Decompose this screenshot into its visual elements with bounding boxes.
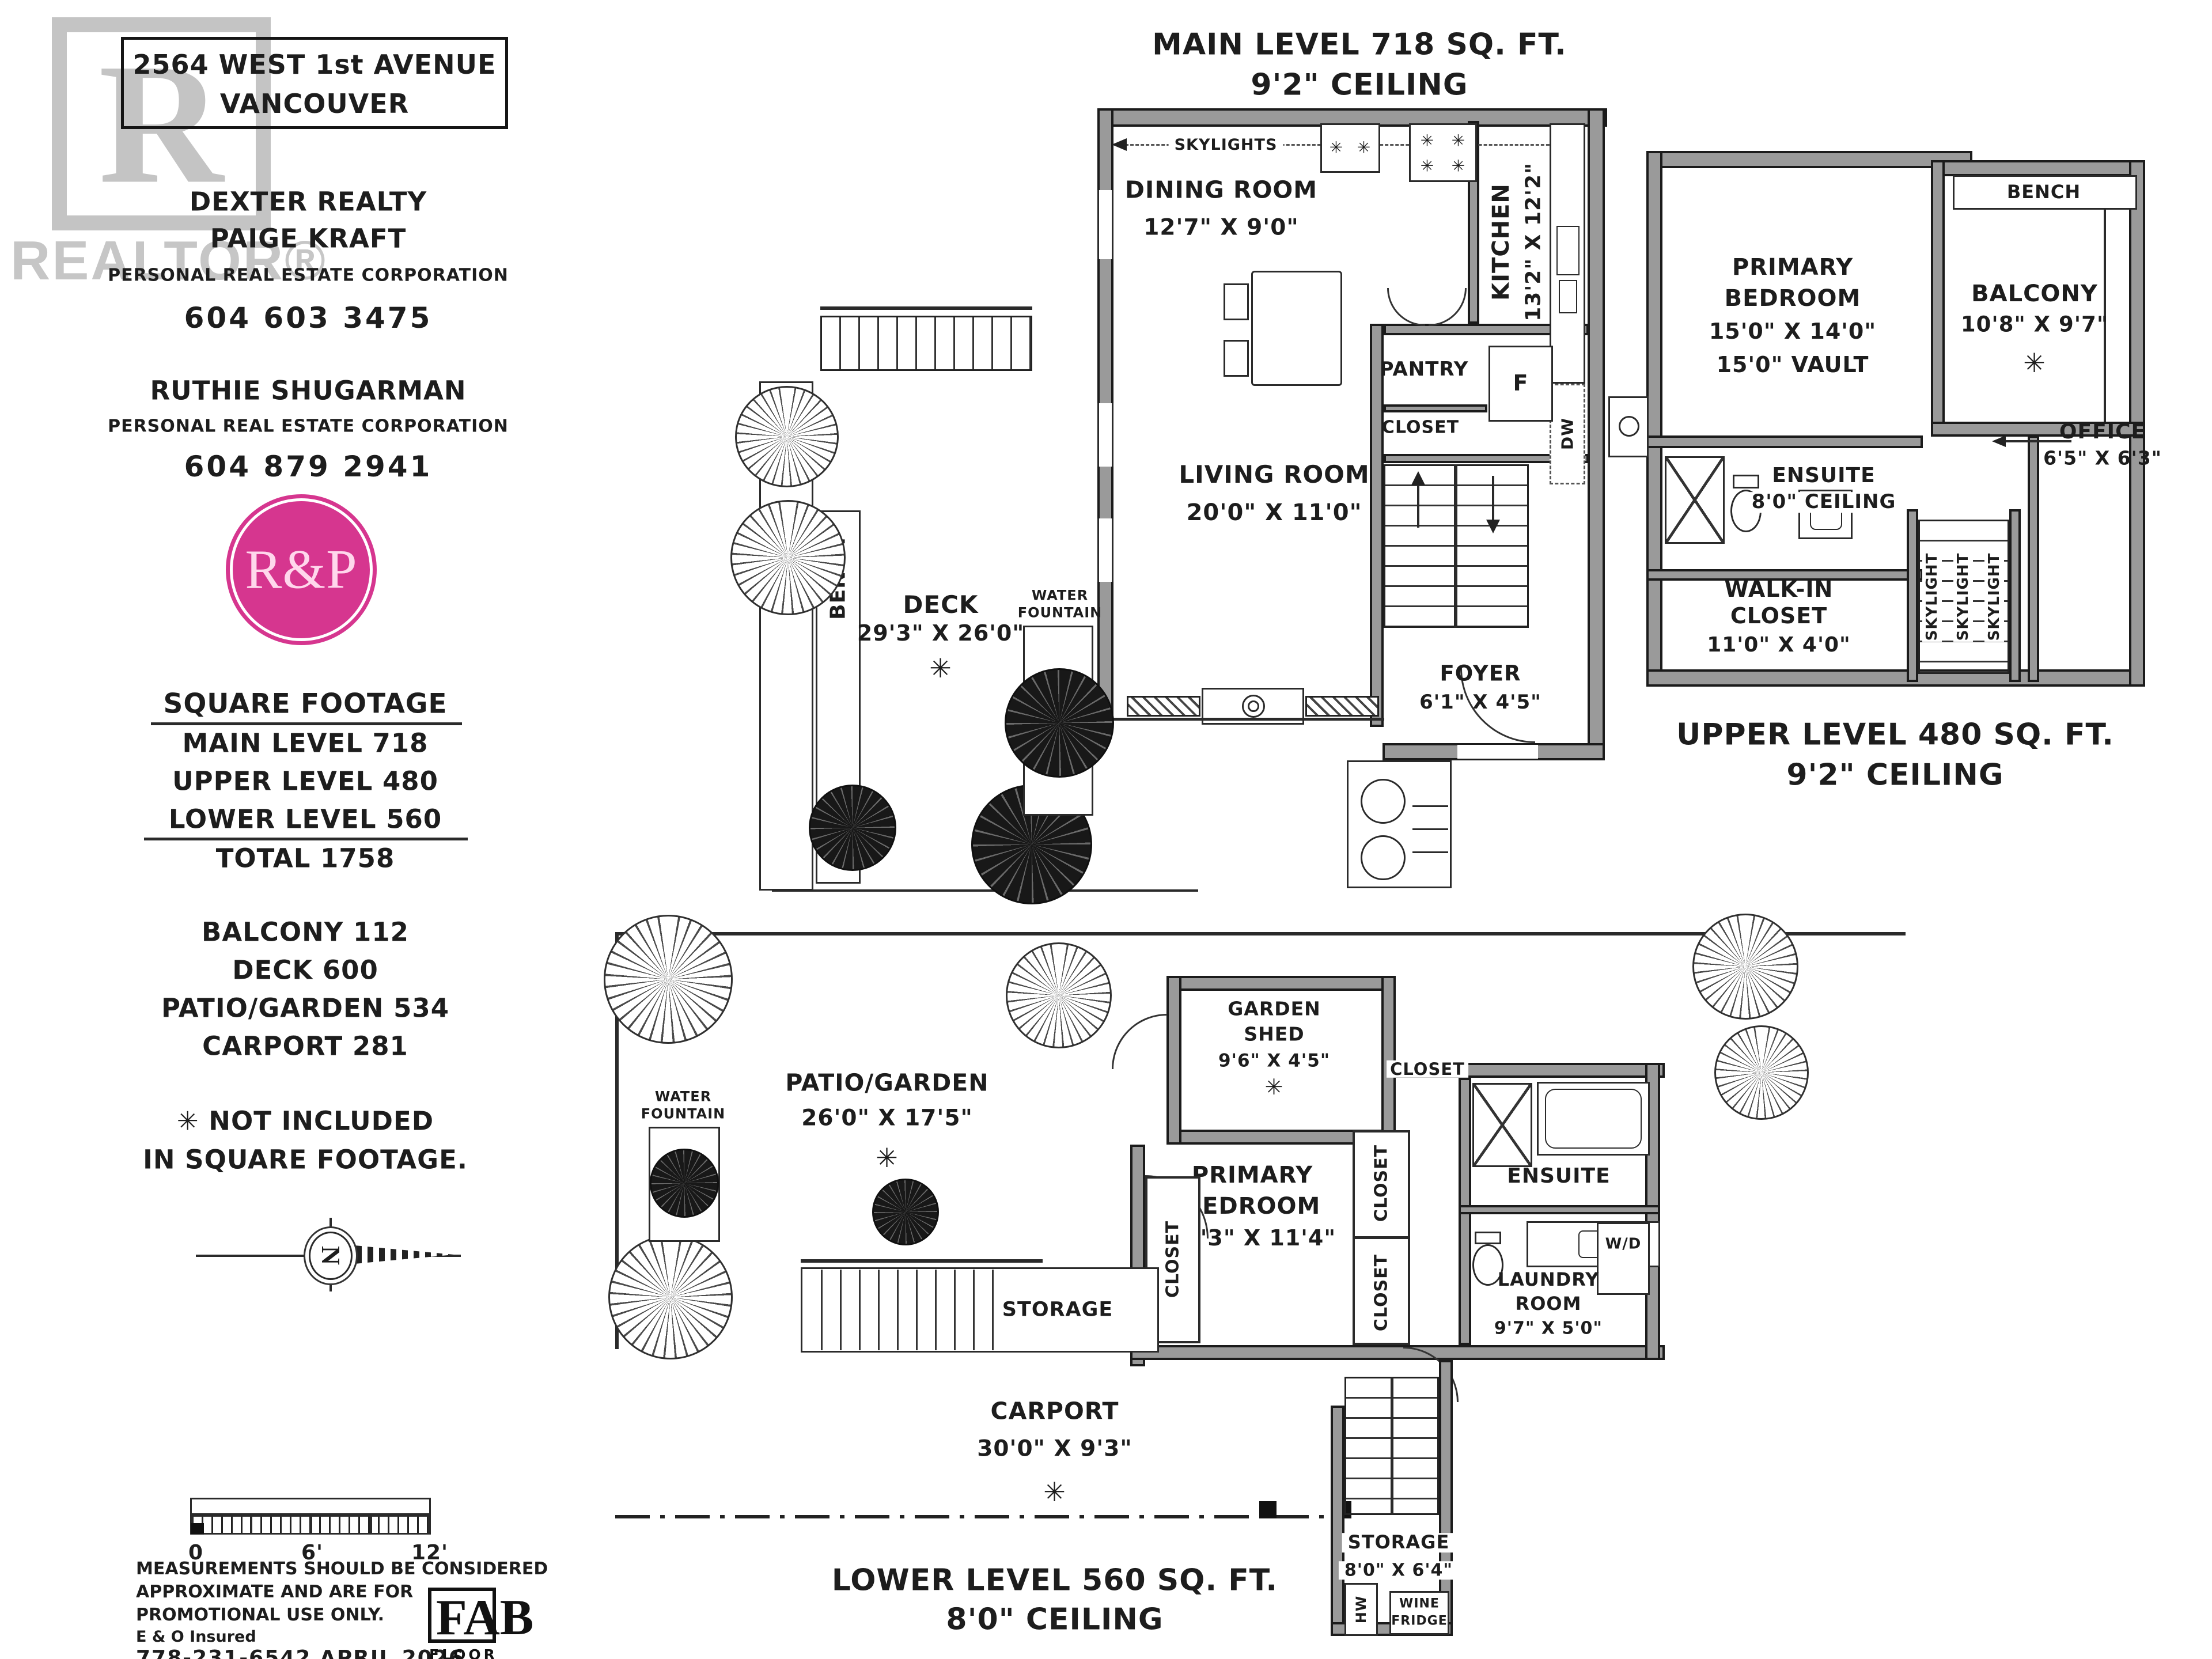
upper-fireplace-ring-icon (1619, 416, 1639, 437)
upper-shower (1665, 456, 1725, 544)
basement-stairs-rail (1391, 1377, 1393, 1515)
sqft-heading: SQUARE FOOTAGE (163, 690, 447, 718)
extra-carport: CARPORT 281 (202, 1032, 408, 1059)
pantry-closet-divider (1384, 404, 1487, 412)
carport-dim: 30'0" X 9'3" (977, 1438, 1132, 1461)
balcony-label: BALCONY (1971, 282, 2098, 306)
extra-patio: PATIO/GARDEN 534 (161, 994, 449, 1021)
deck-stair-rail (820, 306, 1032, 310)
main-level-ceiling: 9'2" CEILING (1251, 70, 1468, 101)
wine-fridge-label2: FRIDGE (1391, 1614, 1448, 1627)
shed-west-wall (1166, 976, 1181, 1145)
dining-room-dim: 12'7" X 9'0" (1143, 217, 1298, 240)
fridge-label: F (1513, 372, 1529, 395)
fab-logo-text: FAB (436, 1589, 533, 1647)
garden-shed-asterisk: ✳ (1265, 1076, 1284, 1099)
rp-logo: R&P (226, 494, 377, 645)
burner-icon: ✳ (1421, 157, 1434, 174)
carport-asterisk: ✳ (1043, 1478, 1066, 1506)
tree-icon (604, 915, 733, 1044)
burner-icon: ✳ (1452, 132, 1465, 149)
water-fountain-label: WATER (1032, 588, 1088, 603)
shrub-icon (872, 1179, 939, 1245)
carport-label: CARPORT (991, 1399, 1119, 1423)
main-closet-label: CLOSET (1382, 418, 1459, 437)
upper-bedroom-label1: PRIMARY (1732, 255, 1853, 279)
patio-asterisk: ✳ (876, 1144, 899, 1172)
skylights-label: SKYLIGHTS (1169, 137, 1283, 153)
lower-level-ceiling: 8'0" CEILING (946, 1604, 1163, 1636)
upper-stair-west-wall (1907, 509, 1918, 682)
porch-step (1412, 851, 1448, 853)
insured-note: E & O Insured (136, 1628, 256, 1646)
tree-icon (1714, 1025, 1809, 1120)
dining-chair (1224, 283, 1249, 320)
mid-closet-divider (1353, 1236, 1410, 1239)
upper-south-wall (1646, 669, 2145, 687)
stairs-down-arrow-icon (1486, 520, 1500, 533)
deck-south-edge (772, 889, 1198, 892)
balcony-west-wall (1931, 160, 1945, 437)
office-label: OFFICE (2059, 421, 2146, 443)
washer-dryer (1597, 1222, 1650, 1295)
upper-bedroom-label2: BEDROOM (1725, 286, 1861, 310)
pantry-door-arc (1429, 288, 1467, 326)
lower-water-fountain-label: WATER (655, 1089, 711, 1104)
balcony-asterisk: ✳ (2023, 349, 2046, 377)
foyer-dim: 6'1" X 4'5" (1419, 692, 1541, 713)
garden-shed-label1: GARDEN (1228, 999, 1321, 1020)
main-east-wall (1588, 108, 1605, 760)
stairs-up-arrow-icon (1411, 471, 1425, 485)
agent2-title: PERSONAL REAL ESTATE CORPORATION (108, 417, 509, 435)
living-room-label: LIVING ROOM (1179, 462, 1369, 487)
deck-label: DECK (903, 592, 979, 618)
address-line2: VANCOUVER (220, 90, 409, 118)
foyer-label: FOYER (1440, 663, 1521, 685)
upper-toilet-tank (1733, 475, 1759, 488)
hearth-hatch (1305, 696, 1379, 717)
main-west-window (1097, 403, 1113, 467)
lower-closet-label: CLOSET (1372, 1145, 1392, 1222)
extra-deck: DECK 600 (232, 956, 378, 983)
property-line (615, 1515, 1332, 1518)
laundry-label1: LAUNDRY (1498, 1270, 1600, 1290)
laundry-label2: ROOM (1516, 1294, 1582, 1314)
tree-icon (730, 500, 846, 615)
balcony-dim: 10'8" X 9'7" (1961, 314, 2108, 336)
upper-level-title: UPPER LEVEL 480 SQ. FT. (1676, 719, 2114, 751)
lower-bedroom-label2: BEDROOM (1184, 1194, 1321, 1218)
skylight-label: SKYLIGHT (1984, 552, 2004, 642)
skylights-arrow-left-icon (1112, 138, 1127, 151)
sqft-total: TOTAL 1758 (216, 844, 395, 872)
lower-water-fountain-label: FOUNTAIN (641, 1107, 725, 1121)
storage2-dim: 8'0" X 6'4" (1339, 1561, 1459, 1580)
sqft-total-underline (144, 838, 468, 840)
burner-icon: ✳ (1452, 157, 1465, 174)
porch-step (1412, 828, 1448, 830)
water-fountain-label: FOUNTAIN (1018, 605, 1102, 620)
burner-icon: ✳ (1357, 139, 1371, 156)
fab-logo-sub: FLOOR PLANS (429, 1646, 573, 1659)
main-level-title: MAIN LEVEL 718 SQ. FT. (1152, 29, 1567, 61)
scale-bar: 0 6' 12' (190, 1498, 431, 1561)
dining-chair (1224, 340, 1249, 377)
tree-icon (608, 1235, 733, 1359)
entry-door-gap (1457, 745, 1538, 759)
shed-door-arc (1112, 1014, 1167, 1069)
stair-rail (801, 1259, 1043, 1263)
fountain-plant-icon (1005, 668, 1114, 778)
porch-planter (1361, 835, 1406, 880)
lower-closet-label: CLOSET (1163, 1221, 1183, 1298)
walkin-label1: WALK-IN (1725, 578, 1834, 601)
extra-balcony: BALCONY 112 (202, 918, 409, 945)
floor-plan-sheet: R REALTOR® 2564 WEST 1st AVENUE VANCOUVE… (0, 0, 2212, 1659)
kitchen-sink (1559, 280, 1577, 313)
skylight-label: SKYLIGHT (1953, 552, 1973, 642)
sqft-upper: UPPER LEVEL 480 (172, 767, 438, 794)
address-line1: 2564 WEST 1st AVENUE (133, 51, 497, 78)
tree-icon (1692, 914, 1798, 1020)
office-dim: 6'5" X 6'3" (2043, 449, 2162, 469)
tree-icon (1006, 942, 1112, 1048)
wine-fridge-label1: WINE (1399, 1597, 1440, 1610)
porch-planter (1361, 779, 1406, 824)
shrub-icon (809, 785, 896, 871)
ensuite-north-wall (1646, 435, 1923, 448)
lower-toilet-tank (1475, 1232, 1501, 1244)
compass-letter: N (317, 1246, 344, 1266)
compass-icon: N (190, 1210, 467, 1302)
lower-ensuite-label: ENSUITE (1507, 1165, 1610, 1187)
dishwasher-label: DW (1558, 418, 1577, 450)
disclaimer-line1: MEASUREMENTS SHOULD BE CONSIDERED (136, 1559, 548, 1579)
shed-north-wall (1166, 976, 1396, 991)
lower-level-title: LOWER LEVEL 560 SQ. FT. (832, 1565, 1278, 1597)
rp-logo-monogram: R&P (245, 541, 357, 599)
hot-water-label: HW (1353, 1596, 1369, 1624)
agent1-name: PAIGE KRAFT (210, 225, 407, 252)
disclaimer-line2: APPROXIMATE AND ARE FOR (136, 1582, 413, 1602)
upper-stair-east-wall (2009, 509, 2021, 682)
kitchen-label: KITCHEN (1488, 183, 1514, 301)
sqft-heading-underline (151, 722, 462, 725)
hearth-hatch (1127, 696, 1200, 717)
laundry-dim: 9'7" X 5'0" (1494, 1319, 1603, 1338)
garden-shed-label2: SHED (1244, 1025, 1304, 1045)
lower-closet-label: CLOSET (1372, 1254, 1392, 1331)
porch-step (1412, 805, 1448, 807)
brokerage-name: DEXTER REALTY (190, 188, 427, 215)
upper-level-ceiling: 9'2" CEILING (1786, 760, 2003, 791)
deck-stairs (820, 316, 1032, 371)
deck-dim: 29'3" X 26'0" (857, 622, 1024, 645)
agent1-phone: 604 603 3475 (184, 303, 433, 334)
lower-tub-inner (1545, 1089, 1642, 1149)
burner-icon: ✳ (1330, 139, 1343, 156)
pantry-door-arc (1387, 288, 1425, 326)
footer-phone-date: 778-231-6542 APRIL 2026 (136, 1646, 464, 1659)
living-south-line (1113, 718, 1384, 721)
agent2-name: RUTHIE SHUGARMAN (150, 377, 467, 404)
sqft-main: MAIN LEVEL 718 (183, 729, 429, 756)
patio-garden-label: PATIO/GARDEN (785, 1070, 988, 1095)
fab-logo: FAB FLOOR PLANS (423, 1584, 573, 1659)
lower-bedroom-label1: PRIMARY (1192, 1163, 1313, 1187)
upper-west-wall (1646, 151, 1662, 687)
upper-ensuite-ceiling: 8'0" CEILING (1746, 492, 1902, 513)
upper-bedroom-vault: 15'0" VAULT (1717, 354, 1869, 377)
range (1409, 123, 1477, 182)
kitchen-sink (1556, 226, 1580, 275)
dining-table (1251, 271, 1342, 386)
office-leader-line (2005, 440, 2071, 442)
fountain-plant-icon (650, 1149, 719, 1218)
burner-icon: ✳ (1421, 132, 1434, 149)
understair-storage-label: STORAGE (997, 1300, 1119, 1321)
main-west-window (1097, 518, 1113, 582)
main-west-window (1097, 190, 1113, 259)
pantry-label: PANTRY (1380, 359, 1469, 380)
balcony-north-wall (1931, 160, 2145, 176)
not-included-2: IN SQUARE FOOTAGE. (143, 1146, 468, 1173)
not-included-1: ✳ NOT INCLUDED (177, 1107, 434, 1134)
lower-shower (1472, 1083, 1532, 1167)
shed-closet-label: CLOSET (1387, 1060, 1468, 1078)
fireplace-ring-icon (1248, 700, 1259, 712)
deck-asterisk: ✳ (929, 654, 952, 682)
upper-ensuite-label: ENSUITE (1766, 465, 1881, 487)
walkin-label2: CLOSET (1730, 605, 1827, 628)
stair-west-wall (1370, 324, 1384, 727)
lower-south-wall (1130, 1345, 1665, 1360)
dining-room-label: DINING ROOM (1125, 177, 1317, 202)
washer-dryer-label: W/D (1605, 1236, 1642, 1252)
storage-west-wall (1331, 1406, 1344, 1636)
upper-north-wall (1646, 151, 1972, 168)
tree-icon (735, 386, 839, 487)
kitchen-dim: 13'2" X 12'2" (1522, 162, 1546, 321)
office-leader-arrow-icon (1992, 435, 2006, 447)
storage2-label: STORAGE (1342, 1533, 1456, 1552)
carport-post (1259, 1501, 1277, 1518)
ensuite-laundry-divider (1459, 1205, 1660, 1214)
walkin-dim: 11'0" X 4'0" (1707, 634, 1851, 656)
lower-stairs-run (804, 1270, 994, 1350)
garden-shed-dim: 9'6" X 4'5" (1218, 1052, 1330, 1071)
disclaimer-line3: PROMOTIONAL USE ONLY. (136, 1605, 384, 1625)
skylight-label: SKYLIGHT (1922, 552, 1942, 642)
patio-garden-dim: 26'0" X 17'5" (801, 1107, 973, 1131)
main-stairs-divider (1454, 464, 1457, 628)
agent1-title: PERSONAL REAL ESTATE CORPORATION (108, 266, 509, 285)
living-room-dim: 20'0" X 11'0" (1187, 501, 1362, 525)
balcony-bench-label: BENCH (2007, 183, 2081, 202)
office-west-wall (2028, 435, 2039, 682)
sqft-lower: LOWER LEVEL 560 (169, 805, 442, 832)
agent2-phone: 604 879 2941 (184, 452, 433, 482)
upper-bedroom-dim: 15'0" X 14'0" (1709, 320, 1876, 343)
